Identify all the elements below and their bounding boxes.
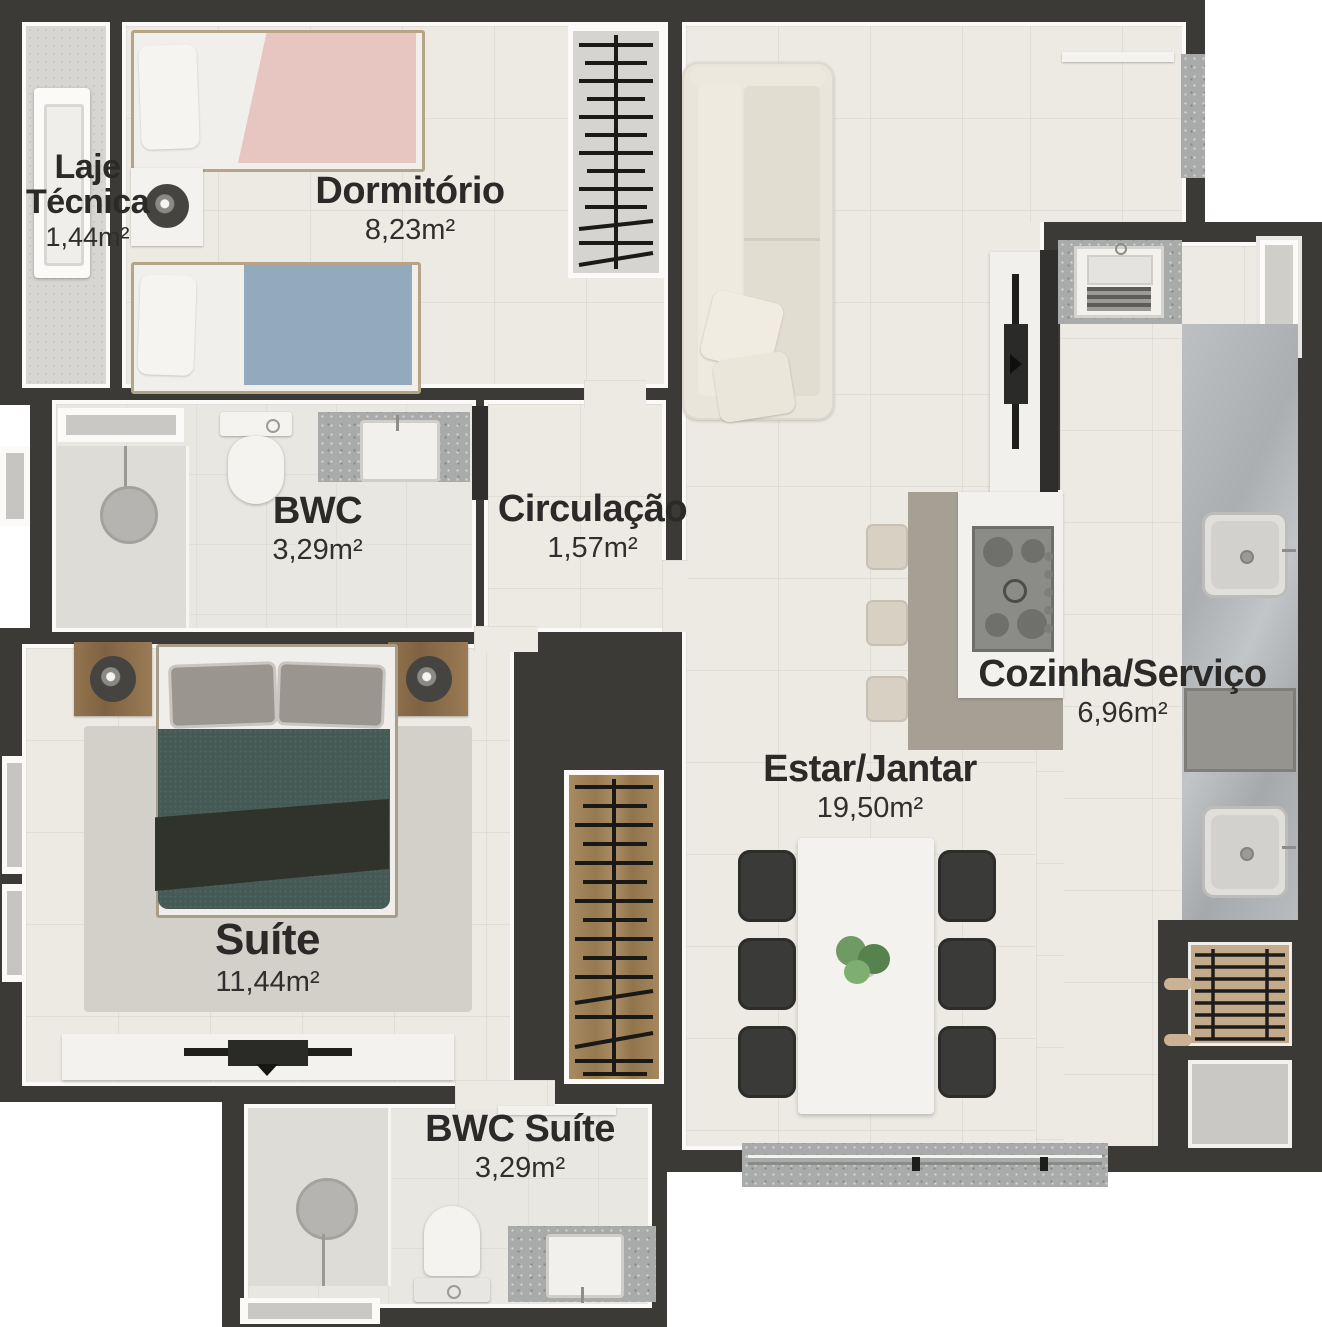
rack-knob — [1164, 978, 1192, 990]
flush-button — [447, 1285, 461, 1299]
toilet-cistern — [414, 1278, 490, 1302]
dining-chair — [938, 850, 996, 922]
cooktop-knob — [1044, 588, 1053, 597]
room-area: 6,96m² — [950, 697, 1295, 730]
window-glass — [6, 453, 24, 519]
window — [2, 756, 28, 874]
single-bed — [131, 30, 425, 172]
burner — [985, 613, 1009, 637]
room-area: 19,50m² — [715, 792, 1025, 825]
room-name: Cozinha/Serviço — [950, 655, 1295, 694]
room-label-laje-tecnica: Laje Técnica 1,44m² — [0, 150, 175, 253]
cooktop-knob — [1044, 552, 1053, 561]
room-name: Suíte — [145, 918, 390, 963]
room-label-suite: Suíte 11,44m² — [145, 918, 390, 999]
room-area: 11,44m² — [145, 966, 390, 999]
door-opening — [662, 560, 688, 632]
faucet — [1282, 549, 1296, 552]
tv-bracket — [1004, 324, 1028, 404]
bed-blanket-blue — [244, 265, 412, 385]
sofa-seam — [744, 238, 820, 241]
tank-basin — [1087, 255, 1153, 285]
entry-threshold — [1181, 54, 1205, 178]
door-leaf — [472, 406, 488, 500]
shower-head — [296, 1178, 358, 1240]
window-glass — [7, 891, 23, 975]
window — [0, 446, 30, 526]
single-bed — [131, 262, 421, 394]
door-stop — [1040, 1157, 1048, 1171]
plant-leaves — [844, 960, 870, 984]
wood-shaft-hatch — [564, 770, 664, 1084]
double-bed — [156, 644, 398, 918]
room-name: Dormitório — [255, 172, 565, 211]
room-name: BWC Suíte — [375, 1110, 665, 1149]
burner — [983, 537, 1013, 567]
tv-bracket-arrow — [1010, 354, 1022, 374]
room-name: BWC — [215, 492, 420, 531]
room-name: Estar/Jantar — [715, 750, 1025, 789]
burner — [1021, 539, 1045, 563]
room-label-estar-jantar: Estar/Jantar 19,50m² — [715, 750, 1025, 825]
floor-plan: Laje Técnica 1,44m² Dormitório 8,23m² BW… — [0, 0, 1322, 1327]
room-label-dormitorio: Dormitório 8,23m² — [255, 172, 565, 247]
window — [58, 408, 184, 442]
dining-chair — [938, 938, 996, 1010]
faucet — [581, 1287, 584, 1303]
dining-chair — [938, 1026, 996, 1098]
burner — [1017, 609, 1047, 639]
dining-chair — [738, 1026, 796, 1098]
pillow — [137, 274, 196, 376]
cooktop — [972, 526, 1054, 652]
pillow — [138, 44, 200, 150]
faucet — [396, 415, 399, 431]
drying-rack-grate — [1188, 942, 1292, 1046]
bwc-basin — [360, 420, 440, 482]
table-lamp — [406, 656, 452, 702]
faucet — [1115, 243, 1127, 255]
dining-chair — [738, 850, 796, 922]
sliding-door-glass — [748, 1155, 1102, 1158]
rack-knob — [1164, 1034, 1192, 1046]
table-lamp — [90, 656, 136, 702]
door-opening — [584, 380, 646, 408]
bwc-suite-basin — [546, 1234, 624, 1298]
window — [240, 1298, 380, 1324]
wall-lining — [1030, 22, 1186, 26]
pillow — [712, 350, 797, 423]
bed-blanket-pink — [238, 33, 416, 163]
tv-suite-base — [228, 1040, 308, 1066]
room-label-circulacao: Circulação 1,57m² — [470, 490, 715, 565]
service-duct — [1188, 1060, 1292, 1148]
faucet — [1282, 846, 1296, 849]
grate-lines — [1191, 945, 1289, 1043]
tank-washboard — [1087, 287, 1151, 311]
hatch-lines — [573, 31, 659, 273]
burner-center — [1003, 579, 1027, 603]
room-name: Laje Técnica — [0, 150, 175, 219]
shower-glass — [186, 446, 189, 628]
shower-head — [100, 486, 158, 544]
shower-arm — [124, 446, 127, 490]
room-label-cozinha-servico: Cozinha/Serviço 6,96m² — [950, 655, 1295, 730]
hatch-lines — [569, 775, 659, 1079]
kitchen-sink — [1202, 512, 1288, 598]
window-glass — [7, 763, 23, 867]
room-area: 3,29m² — [375, 1152, 665, 1185]
room-area: 3,29m² — [215, 534, 420, 567]
toilet-bowl — [424, 1206, 480, 1276]
window-glass — [66, 415, 176, 435]
room-area: 8,23m² — [255, 214, 565, 247]
tv-mount-arrow — [256, 1064, 278, 1076]
window-glass — [248, 1303, 372, 1319]
wall-shelf — [1062, 52, 1174, 62]
shower-arm — [322, 1234, 325, 1286]
pillow — [276, 661, 386, 729]
divider-wall — [1040, 250, 1058, 495]
cooktop-knob — [1044, 624, 1053, 633]
room-label-bwc: BWC 3,29m² — [215, 492, 420, 567]
door-opening — [474, 626, 538, 652]
room-area: 1,44m² — [0, 222, 175, 253]
kitchen-sink — [1202, 806, 1288, 898]
sofa — [682, 62, 834, 420]
dining-chair — [738, 938, 796, 1010]
cooktop-knob — [1044, 606, 1053, 615]
room-name: Circulação — [470, 490, 715, 529]
cooktop-knob — [1044, 570, 1053, 579]
door-stop — [912, 1157, 920, 1171]
flush-button — [266, 419, 280, 433]
window — [2, 884, 28, 982]
room-label-bwc-suite: BWC Suíte 3,29m² — [375, 1110, 665, 1185]
room-area: 1,57m² — [470, 532, 715, 565]
pillow — [168, 661, 278, 729]
sink-drain — [1240, 550, 1254, 564]
toilet-cistern — [220, 412, 292, 436]
sliding-door-sill — [742, 1143, 1108, 1187]
bar-stool — [866, 524, 908, 570]
sink-drain — [1240, 847, 1254, 861]
technical-shaft-hatch — [568, 26, 664, 278]
bar-stool — [866, 600, 908, 646]
laundry-tank — [1074, 246, 1164, 318]
bar-stool — [866, 676, 908, 722]
sliding-door-rail — [748, 1162, 1102, 1169]
